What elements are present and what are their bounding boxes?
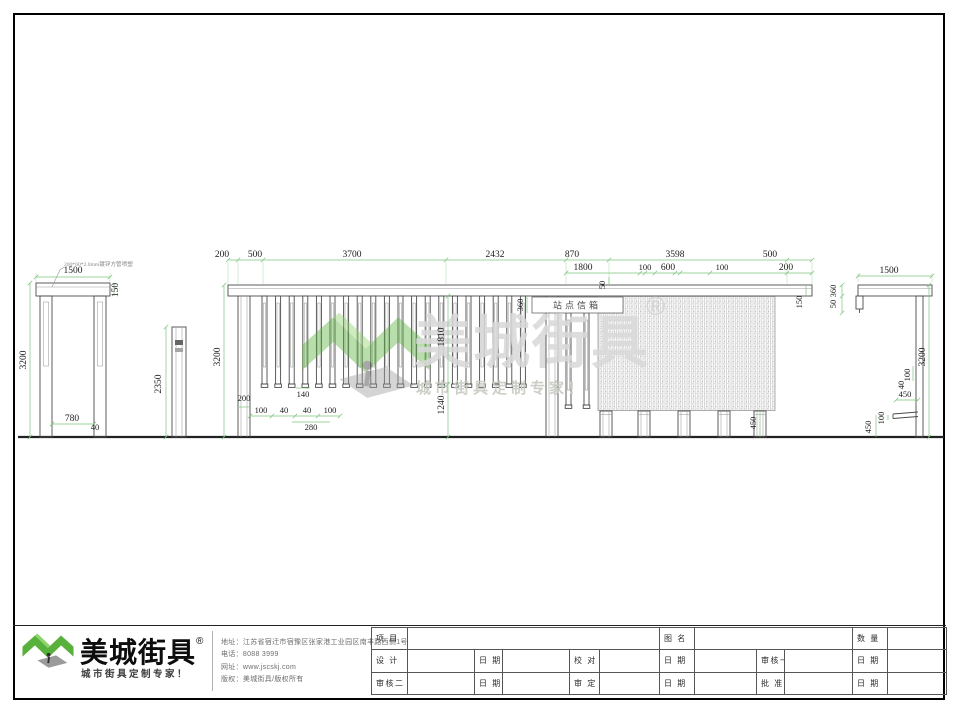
field-review2-label: 审核二 bbox=[372, 672, 408, 694]
dim-label: 100 bbox=[255, 405, 268, 415]
field-design-label: 设 计 bbox=[372, 650, 408, 672]
dim-label: 100 bbox=[324, 405, 337, 415]
watermark-tagline: 城市街具定制专家！ bbox=[416, 379, 587, 397]
dim-label: 100 bbox=[639, 262, 652, 272]
brand-tagline: 城市街具定制专家！ bbox=[81, 666, 189, 680]
field-date-value[interactable] bbox=[888, 672, 947, 694]
field-date-label: 日 期 bbox=[475, 650, 503, 672]
dim-label: 500 bbox=[763, 250, 778, 260]
dim-label: 40 bbox=[280, 405, 289, 415]
field-approve-value[interactable] bbox=[600, 672, 660, 694]
dim-label: 3200 bbox=[19, 350, 29, 369]
brand-name: 美城街具® bbox=[80, 631, 204, 671]
field-drawing-name-label: 图 名 bbox=[660, 628, 695, 650]
dim-label: 1240 bbox=[437, 395, 447, 414]
field-project-label: 项 目 bbox=[372, 628, 408, 650]
field-approve-label: 审 定 bbox=[570, 672, 600, 694]
watermark-registered-icon: ® bbox=[646, 291, 665, 321]
dim-label: 100 bbox=[902, 369, 912, 382]
registered-icon: ® bbox=[196, 636, 204, 647]
field-date-value[interactable] bbox=[888, 650, 947, 672]
field-date-label: 日 期 bbox=[660, 650, 695, 672]
dim-label: 200 bbox=[238, 393, 251, 403]
field-ratify-label: 批 准 bbox=[757, 672, 785, 694]
dim-label: 1810 bbox=[437, 327, 447, 346]
field-review1-value[interactable] bbox=[785, 650, 853, 672]
field-project-value[interactable] bbox=[408, 628, 660, 650]
dim-label: 150 bbox=[794, 296, 804, 309]
field-date-value[interactable] bbox=[695, 672, 757, 694]
dim-label: 200 bbox=[779, 263, 794, 273]
field-date-label: 日 期 bbox=[475, 672, 503, 694]
dim-label: 3700 bbox=[343, 250, 362, 260]
dim-label: 140 bbox=[297, 389, 310, 399]
dim-label: 450 bbox=[748, 417, 758, 430]
field-date-value[interactable] bbox=[503, 650, 570, 672]
field-date-label: 日 期 bbox=[853, 650, 888, 672]
dim-label: 450 bbox=[863, 421, 873, 434]
sign-plate-label: 站点信箱 bbox=[553, 300, 601, 311]
cad-canvas: 美城街具 ® 城市街具定制专家！ 1500 150 3200 780 40 20… bbox=[0, 0, 960, 704]
dim-label: 600 bbox=[661, 263, 676, 273]
dim-label: 2432 bbox=[486, 250, 505, 260]
dim-label: 2350 bbox=[154, 374, 164, 393]
title-block-divider bbox=[13, 625, 946, 626]
dim-label: 40 bbox=[303, 405, 312, 415]
brand-logo bbox=[20, 631, 76, 676]
mid-post-view bbox=[172, 327, 186, 437]
dimensions-right: 1500 360 50 3200 100 40 450 100 450 bbox=[828, 266, 934, 439]
field-date-value[interactable] bbox=[695, 650, 757, 672]
dim-label: 50 bbox=[597, 281, 607, 290]
dim-label: 40 bbox=[91, 422, 100, 432]
dim-label: 780 bbox=[65, 414, 80, 424]
dim-label: 100 bbox=[876, 412, 886, 425]
dim-label: 50 bbox=[828, 300, 838, 309]
title-block-table: 项 目 图 名 数 量 设 计 日 期 校 对 日 期 审核一 日 期 审核二 … bbox=[371, 627, 947, 695]
dim-label: 40 bbox=[896, 381, 906, 390]
field-date-label: 日 期 bbox=[853, 672, 888, 694]
footer-divider bbox=[212, 631, 213, 691]
dim-label: 200 bbox=[215, 250, 230, 260]
dim-label: 870 bbox=[565, 250, 580, 260]
field-proofread-value[interactable] bbox=[600, 650, 660, 672]
field-proofread-label: 校 对 bbox=[570, 650, 600, 672]
watermark-brand: 美城街具 bbox=[414, 311, 650, 375]
dim-label: 450 bbox=[899, 389, 912, 399]
brand-text: 美城街具 bbox=[80, 637, 196, 668]
dim-label: 360 bbox=[515, 299, 525, 312]
dim-label: 1500 bbox=[880, 266, 899, 276]
drawing-sheet: 美城街具 ® 城市街具定制专家！ 1500 150 3200 780 40 20… bbox=[0, 0, 960, 704]
field-ratify-value[interactable] bbox=[785, 672, 853, 694]
dim-label: 500 bbox=[248, 250, 263, 260]
dim-label: 150 bbox=[111, 283, 121, 298]
left-elevation bbox=[36, 267, 110, 437]
field-review1-label: 审核一 bbox=[757, 650, 785, 672]
dim-label: 1800 bbox=[574, 263, 593, 273]
material-annotation: 200*60*2.0mm镀锌方管喷塑 bbox=[64, 260, 133, 268]
field-quantity-label: 数 量 bbox=[853, 628, 888, 650]
field-review2-value[interactable] bbox=[408, 672, 475, 694]
dim-label: 3598 bbox=[666, 250, 685, 260]
field-date-label: 日 期 bbox=[660, 672, 695, 694]
dim-label: 280 bbox=[305, 422, 318, 432]
dim-label: 100 bbox=[716, 262, 729, 272]
field-drawing-name-value[interactable] bbox=[695, 628, 853, 650]
field-date-value[interactable] bbox=[503, 672, 570, 694]
dim-label: 3200 bbox=[213, 347, 223, 366]
field-design-value[interactable] bbox=[408, 650, 475, 672]
field-quantity-value[interactable] bbox=[888, 628, 947, 650]
dim-label: 3200 bbox=[918, 347, 928, 366]
dim-label: 360 bbox=[828, 285, 838, 298]
